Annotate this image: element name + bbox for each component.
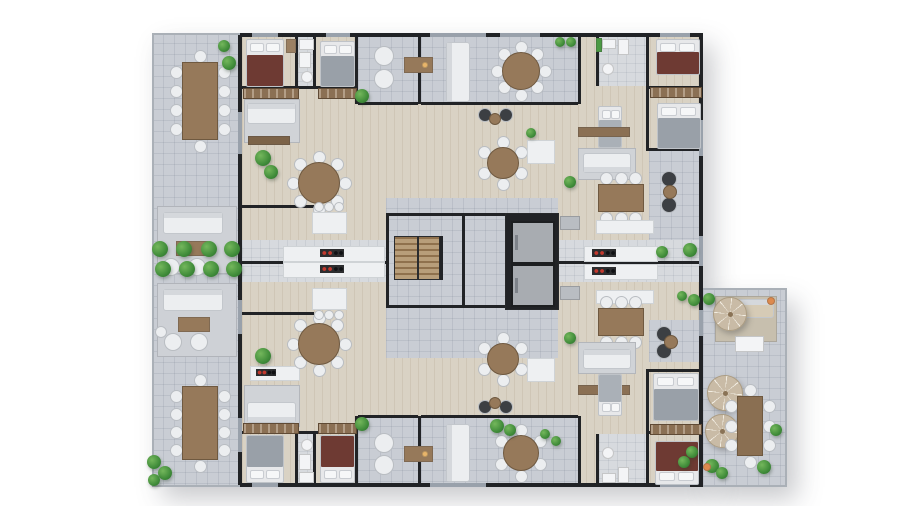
window-opening bbox=[252, 33, 278, 37]
cooktop bbox=[592, 249, 616, 257]
bed-pillow bbox=[611, 403, 620, 412]
parapet bbox=[703, 288, 787, 290]
wall-segment bbox=[578, 416, 581, 483]
elevator-door bbox=[515, 278, 518, 294]
bed bbox=[656, 39, 700, 75]
chair bbox=[725, 400, 738, 413]
cooktop bbox=[320, 265, 344, 273]
bed bbox=[598, 374, 622, 416]
window-opening bbox=[500, 33, 540, 37]
bed-pillow bbox=[250, 470, 264, 479]
bed-pillow bbox=[339, 45, 352, 54]
chair bbox=[170, 444, 183, 457]
chair bbox=[497, 374, 510, 387]
plant bbox=[264, 165, 278, 179]
toilet bbox=[602, 63, 614, 75]
staircase bbox=[394, 236, 440, 280]
side-table bbox=[489, 113, 501, 125]
bed-blanket bbox=[321, 436, 354, 467]
sofa bbox=[163, 212, 223, 234]
bed bbox=[320, 41, 355, 87]
wall-segment bbox=[648, 369, 699, 372]
bed-pillow bbox=[659, 472, 675, 481]
plant bbox=[255, 150, 271, 166]
chair bbox=[339, 338, 352, 351]
dining-table bbox=[737, 396, 763, 456]
bath-shower bbox=[299, 454, 311, 470]
wardrobe bbox=[318, 423, 357, 434]
plant bbox=[226, 261, 242, 277]
plant bbox=[490, 419, 504, 433]
window-opening bbox=[699, 236, 703, 266]
toilet bbox=[301, 439, 313, 451]
chair bbox=[194, 460, 207, 473]
elevator-door bbox=[515, 235, 518, 251]
bed-blanket bbox=[658, 118, 700, 148]
chair bbox=[661, 197, 677, 213]
chair bbox=[374, 46, 394, 66]
chair bbox=[170, 66, 183, 79]
chair bbox=[164, 333, 182, 351]
sofa-back bbox=[164, 213, 222, 218]
plant bbox=[757, 460, 771, 474]
bed bbox=[246, 435, 284, 483]
chair bbox=[744, 384, 757, 397]
plant bbox=[540, 429, 550, 439]
chair bbox=[334, 310, 344, 320]
sofa-back bbox=[447, 425, 452, 481]
window-opening bbox=[238, 418, 242, 452]
elevator-cab bbox=[511, 221, 555, 264]
sideboard bbox=[578, 127, 630, 137]
plant bbox=[201, 241, 217, 257]
wall-segment bbox=[646, 37, 649, 151]
bed-pillow bbox=[324, 45, 337, 54]
chair bbox=[314, 202, 324, 212]
bed-blanket bbox=[247, 55, 283, 86]
chair bbox=[763, 439, 776, 452]
plant bbox=[677, 291, 687, 301]
bed-blanket bbox=[654, 389, 698, 420]
plant bbox=[686, 446, 698, 458]
side-table bbox=[489, 397, 501, 409]
window-opening bbox=[430, 483, 486, 487]
window-opening bbox=[252, 483, 278, 487]
wall-segment bbox=[596, 434, 599, 483]
plant bbox=[152, 241, 168, 257]
window-opening bbox=[430, 33, 486, 37]
parapet bbox=[152, 33, 240, 35]
plant bbox=[148, 474, 160, 486]
plant bbox=[566, 37, 576, 47]
plant bbox=[688, 294, 700, 306]
bed-pillow bbox=[679, 43, 695, 52]
chair bbox=[218, 390, 231, 403]
wardrobe bbox=[650, 87, 702, 98]
wardrobe bbox=[318, 88, 357, 99]
plant bbox=[526, 128, 536, 138]
cooktop bbox=[592, 267, 616, 275]
chair bbox=[218, 444, 231, 457]
sofa-back bbox=[248, 417, 295, 422]
chair bbox=[744, 456, 757, 469]
parapet bbox=[152, 485, 240, 487]
window-opening bbox=[238, 300, 242, 334]
chair bbox=[499, 400, 513, 414]
balcony-desk bbox=[404, 446, 433, 462]
plant bbox=[179, 261, 195, 277]
side-table bbox=[663, 185, 677, 199]
umbrella-hub bbox=[720, 429, 725, 434]
toilet bbox=[301, 71, 313, 83]
chair bbox=[763, 400, 776, 413]
kitchen-counter bbox=[312, 288, 347, 310]
tv-console bbox=[248, 136, 290, 145]
round-dining-table bbox=[298, 323, 340, 365]
bed-pillow bbox=[339, 470, 352, 479]
chair bbox=[324, 202, 334, 212]
bed-pillow bbox=[657, 377, 674, 386]
sofa-back bbox=[584, 350, 630, 355]
wall-segment bbox=[440, 236, 443, 280]
dining-table bbox=[182, 386, 218, 460]
parapet bbox=[785, 290, 787, 487]
bed bbox=[657, 103, 701, 149]
plant bbox=[716, 467, 728, 479]
chair bbox=[334, 202, 344, 212]
plant bbox=[224, 241, 240, 257]
bed-pillow bbox=[266, 470, 280, 479]
plant bbox=[770, 424, 782, 436]
wall-segment bbox=[421, 102, 578, 105]
cooktop bbox=[320, 249, 344, 257]
parapet bbox=[703, 485, 787, 487]
fridge bbox=[560, 216, 580, 230]
lamp bbox=[422, 62, 428, 68]
bath-sink bbox=[602, 473, 616, 483]
lamp bbox=[767, 297, 775, 305]
chair bbox=[170, 85, 183, 98]
wardrobe bbox=[650, 424, 702, 435]
bath-sink bbox=[299, 472, 314, 483]
chair bbox=[190, 333, 208, 351]
lamp bbox=[422, 451, 428, 457]
sofa-back bbox=[447, 43, 452, 101]
chair bbox=[170, 390, 183, 403]
chair bbox=[499, 108, 513, 122]
sofa bbox=[446, 42, 470, 102]
chair bbox=[218, 426, 231, 439]
chair bbox=[515, 89, 528, 102]
chair bbox=[218, 85, 231, 98]
plant bbox=[176, 241, 192, 257]
balcony-desk bbox=[404, 57, 433, 73]
sofa bbox=[247, 103, 296, 124]
chair bbox=[374, 69, 394, 89]
chair bbox=[155, 326, 167, 338]
wall-segment bbox=[358, 415, 418, 418]
chair bbox=[725, 439, 738, 452]
chair bbox=[194, 140, 207, 153]
bed bbox=[653, 373, 699, 421]
chair bbox=[218, 104, 231, 117]
kitchen-counter bbox=[527, 140, 555, 164]
window-opening bbox=[326, 33, 350, 37]
plant bbox=[656, 246, 668, 258]
chair bbox=[313, 364, 326, 377]
chair bbox=[194, 374, 207, 387]
plant bbox=[355, 89, 369, 103]
sofa bbox=[583, 153, 631, 173]
bath-shower bbox=[299, 52, 311, 68]
chair bbox=[374, 455, 394, 475]
plant bbox=[218, 40, 230, 52]
bed-pillow bbox=[678, 472, 694, 481]
chair bbox=[600, 172, 613, 185]
chair bbox=[629, 172, 642, 185]
plant bbox=[703, 293, 715, 305]
plant bbox=[155, 261, 171, 277]
bed bbox=[246, 39, 284, 87]
umbrella-hub bbox=[723, 391, 728, 396]
nightstand bbox=[286, 39, 296, 53]
chair bbox=[170, 123, 183, 136]
chair bbox=[725, 420, 738, 433]
side-table bbox=[664, 335, 678, 349]
bath-shower bbox=[618, 467, 629, 483]
dining-table bbox=[598, 184, 644, 212]
round-dining-table bbox=[502, 52, 540, 90]
chair bbox=[600, 296, 613, 309]
wall-segment bbox=[578, 37, 581, 104]
chair bbox=[515, 470, 528, 483]
plant bbox=[555, 37, 565, 47]
window-opening bbox=[660, 33, 690, 37]
plant bbox=[683, 243, 697, 257]
wall-segment bbox=[295, 434, 298, 483]
sofa bbox=[446, 424, 470, 482]
chair bbox=[629, 296, 642, 309]
sofa bbox=[163, 289, 223, 311]
dining-table bbox=[182, 62, 218, 140]
chair bbox=[324, 310, 334, 320]
chair bbox=[194, 50, 207, 63]
chair bbox=[615, 172, 628, 185]
chair bbox=[218, 123, 231, 136]
lamp bbox=[703, 463, 711, 471]
wardrobe bbox=[243, 423, 299, 434]
round-dining-table bbox=[487, 147, 519, 179]
wall-segment bbox=[358, 102, 418, 105]
round-dining-table bbox=[503, 435, 539, 471]
bed-pillow bbox=[611, 110, 620, 119]
bath-sink bbox=[299, 39, 314, 50]
chair bbox=[497, 178, 510, 191]
cooktop bbox=[256, 369, 276, 376]
round-dining-table bbox=[487, 343, 519, 375]
plant bbox=[551, 436, 561, 446]
plant bbox=[504, 424, 516, 436]
window-opening bbox=[238, 112, 242, 154]
wall-segment bbox=[242, 312, 314, 315]
chair bbox=[170, 104, 183, 117]
bed-pillow bbox=[680, 107, 696, 116]
chair bbox=[374, 433, 394, 453]
bed-pillow bbox=[324, 470, 337, 479]
chair bbox=[615, 296, 628, 309]
chair bbox=[339, 177, 352, 190]
plant bbox=[564, 332, 576, 344]
elevator-cab bbox=[511, 264, 555, 307]
sofa-back bbox=[164, 290, 222, 295]
tray-table bbox=[735, 336, 764, 352]
bed-pillow bbox=[660, 43, 676, 52]
wall-segment bbox=[646, 369, 649, 483]
plant bbox=[678, 456, 690, 468]
chair bbox=[539, 65, 552, 78]
plant bbox=[255, 348, 271, 364]
chair bbox=[170, 408, 183, 421]
wall-segment bbox=[421, 415, 578, 418]
kitchen-counter bbox=[596, 220, 654, 234]
bed-pillow bbox=[661, 107, 677, 116]
dining-table bbox=[598, 308, 644, 336]
patio-umbrella bbox=[713, 297, 747, 331]
plant bbox=[158, 466, 172, 480]
umbrella-hub bbox=[728, 312, 733, 317]
parapet bbox=[152, 33, 154, 487]
bed-blanket bbox=[599, 375, 621, 402]
plant bbox=[222, 56, 236, 70]
fridge bbox=[560, 286, 580, 300]
plant bbox=[355, 417, 369, 431]
window-opening bbox=[699, 310, 703, 336]
chair bbox=[218, 408, 231, 421]
bed-pillow bbox=[250, 43, 264, 52]
wardrobe bbox=[243, 88, 299, 99]
bed-blanket bbox=[657, 52, 699, 74]
sofa bbox=[247, 402, 296, 423]
bed-blanket bbox=[321, 56, 354, 86]
floor-plan-render bbox=[0, 0, 900, 506]
coffee-table bbox=[178, 317, 210, 332]
chair bbox=[170, 426, 183, 439]
chair bbox=[314, 310, 324, 320]
plant bbox=[564, 176, 576, 188]
bed-blanket bbox=[247, 436, 283, 467]
round-dining-table bbox=[298, 162, 340, 204]
bed bbox=[320, 435, 355, 483]
plant bbox=[147, 455, 161, 469]
sofa-back bbox=[248, 104, 295, 109]
wall-segment bbox=[462, 213, 465, 308]
bed-pillow bbox=[266, 43, 280, 52]
sofa bbox=[583, 349, 631, 369]
kitchen-counter bbox=[312, 212, 347, 234]
stair-rail bbox=[417, 237, 419, 279]
wall-segment bbox=[386, 213, 389, 308]
bath-shower bbox=[618, 39, 629, 55]
toilet bbox=[602, 447, 614, 459]
bath-sink bbox=[602, 39, 616, 49]
plant bbox=[203, 261, 219, 277]
bed-pillow bbox=[677, 377, 694, 386]
kitchen-counter bbox=[527, 358, 555, 382]
